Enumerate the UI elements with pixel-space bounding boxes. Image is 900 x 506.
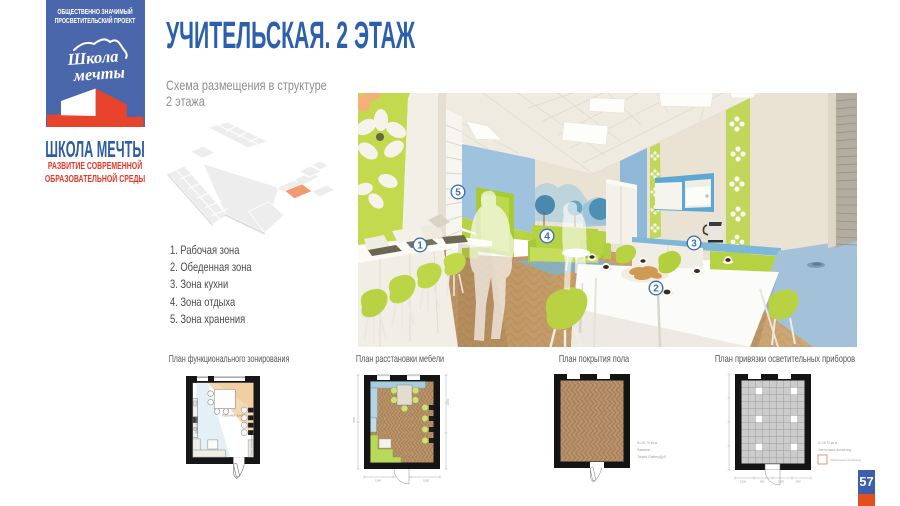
svg-text:900: 900 — [760, 480, 765, 484]
svg-text:Зона кухни: Зона кухни — [195, 416, 199, 433]
svg-text:Зона хранения: Зона хранения — [249, 434, 253, 455]
svg-text:Tarkett Gallery/Дуб: Tarkett Gallery/Дуб — [637, 455, 666, 459]
svg-text:мечты: мечты — [72, 62, 126, 85]
svg-text:S=28.70 кв.м: S=28.70 кв.м — [637, 441, 658, 445]
svg-text:Ламинат: Ламинат — [637, 448, 651, 452]
svg-text:3: 3 — [691, 239, 697, 250]
svg-text:1: 1 — [417, 241, 423, 252]
svg-text:Светильник Armstrong: Светильник Armstrong — [830, 458, 861, 462]
svg-text:Светильник Armstrong: Светильник Armstrong — [818, 448, 851, 452]
svg-text:Рабочая зона: Рабочая зона — [222, 413, 243, 417]
svg-text:1500: 1500 — [423, 478, 430, 482]
svg-text:2: 2 — [653, 284, 659, 295]
svg-text:1200: 1200 — [446, 398, 450, 405]
svg-text:2570: 2570 — [352, 416, 356, 423]
svg-text:1200: 1200 — [740, 480, 747, 484]
svg-text:1140: 1140 — [375, 478, 381, 482]
svg-text:900: 900 — [796, 480, 801, 484]
svg-text:1200: 1200 — [778, 480, 785, 484]
svg-text:S=28.70 кв.м: S=28.70 кв.м — [818, 441, 837, 445]
svg-text:5: 5 — [455, 188, 461, 199]
svg-text:4: 4 — [544, 232, 550, 243]
